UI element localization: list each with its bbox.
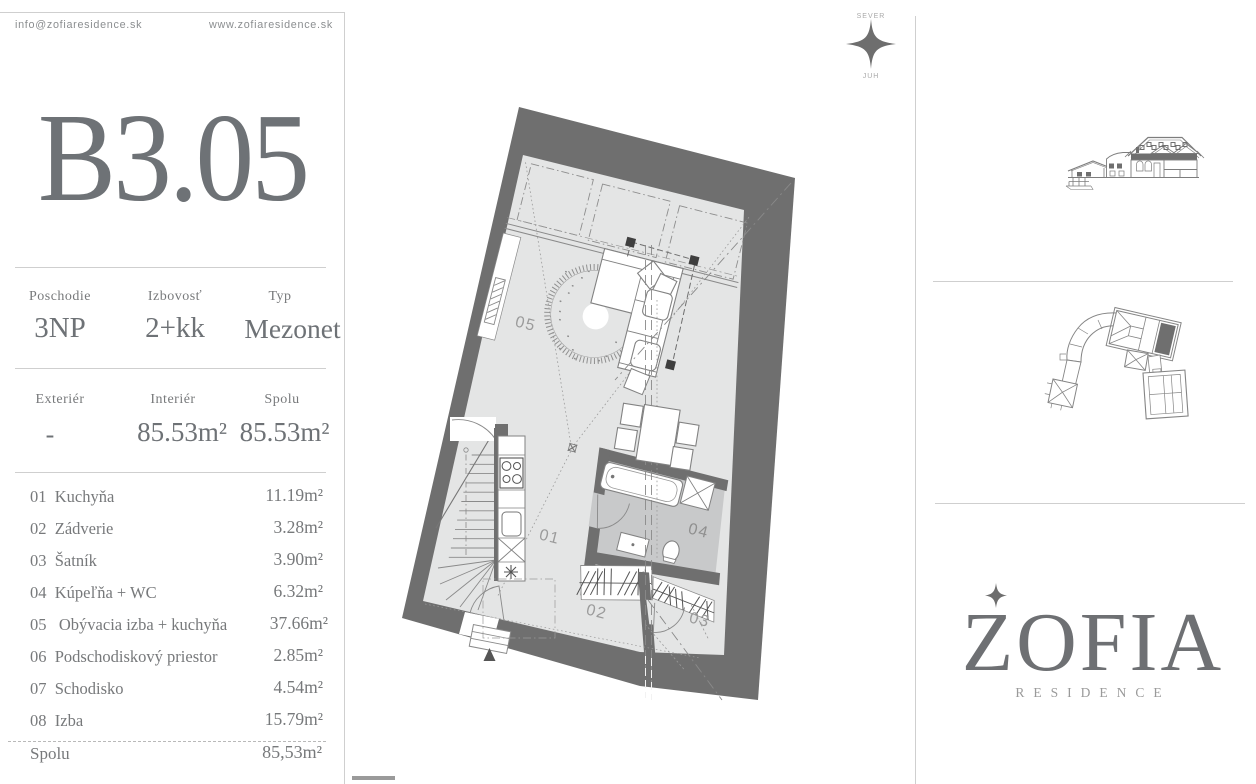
svg-text:SEVER: SEVER: [857, 13, 886, 20]
svg-text:RESIDENCE: RESIDENCE: [1015, 685, 1170, 700]
svg-text:JUH: JUH: [863, 73, 880, 80]
svg-text:ZOFIA: ZOFIA: [962, 596, 1224, 689]
